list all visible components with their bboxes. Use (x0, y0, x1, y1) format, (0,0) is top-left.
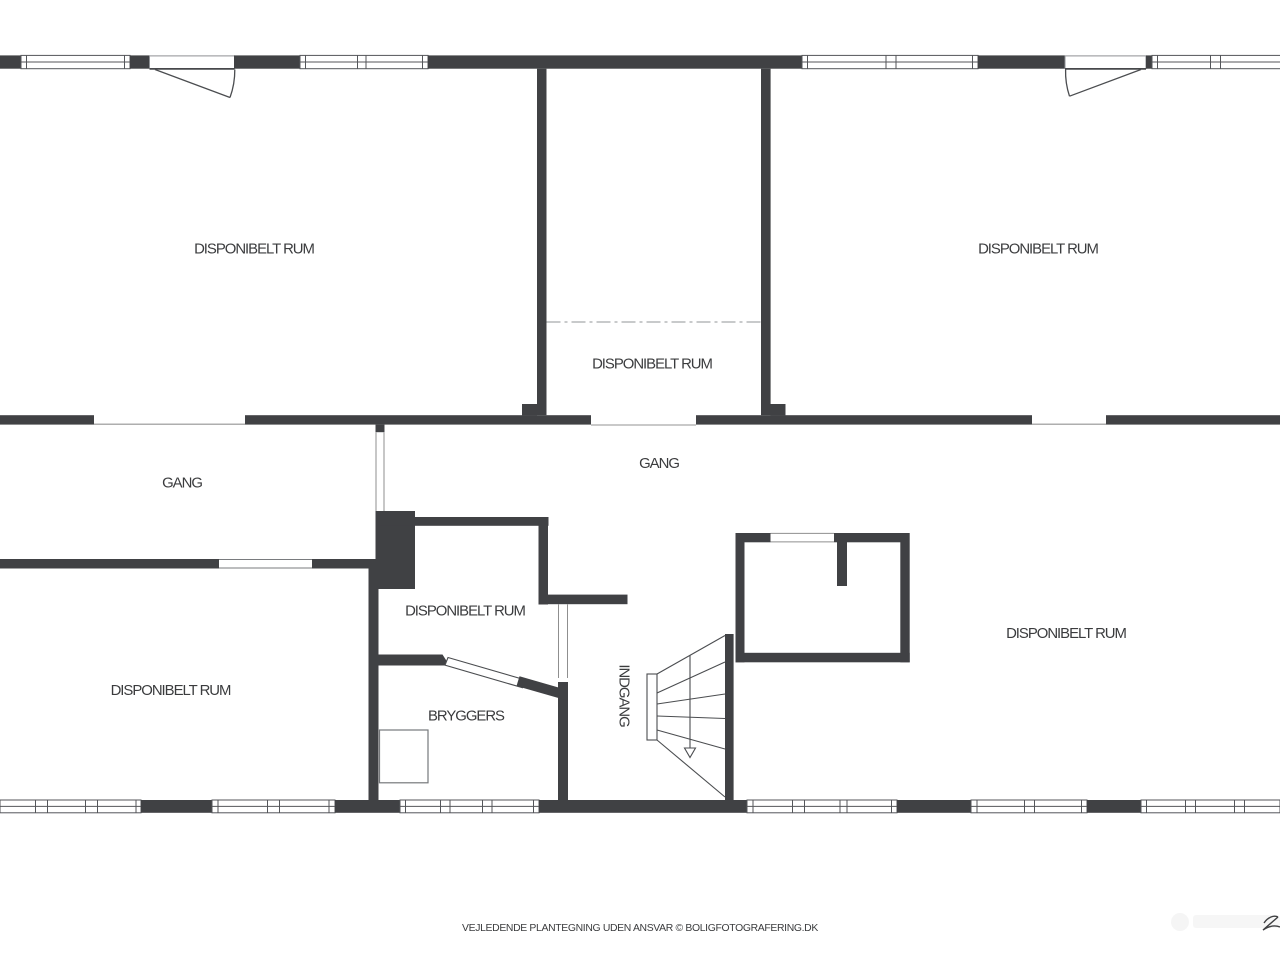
svg-text:DISPONIBELT RUM: DISPONIBELT RUM (194, 242, 314, 258)
svg-text:DISPONIBELT RUM: DISPONIBELT RUM (592, 356, 712, 372)
svg-text:INDGANG: INDGANG (616, 664, 632, 727)
svg-text:DISPONIBELT RUM: DISPONIBELT RUM (111, 683, 231, 699)
svg-text:GANG: GANG (162, 476, 202, 492)
svg-text:DISPONIBELT RUM: DISPONIBELT RUM (1006, 626, 1126, 642)
svg-text:DISPONIBELT RUM: DISPONIBELT RUM (978, 242, 1098, 258)
svg-text:VEJLEDENDE PLANTEGNING UDEN AN: VEJLEDENDE PLANTEGNING UDEN ANSVAR © BOL… (462, 923, 818, 934)
svg-text:DISPONIBELT RUM: DISPONIBELT RUM (405, 604, 525, 620)
svg-text:BRYGGERS: BRYGGERS (428, 709, 505, 725)
svg-text:GANG: GANG (639, 456, 679, 472)
